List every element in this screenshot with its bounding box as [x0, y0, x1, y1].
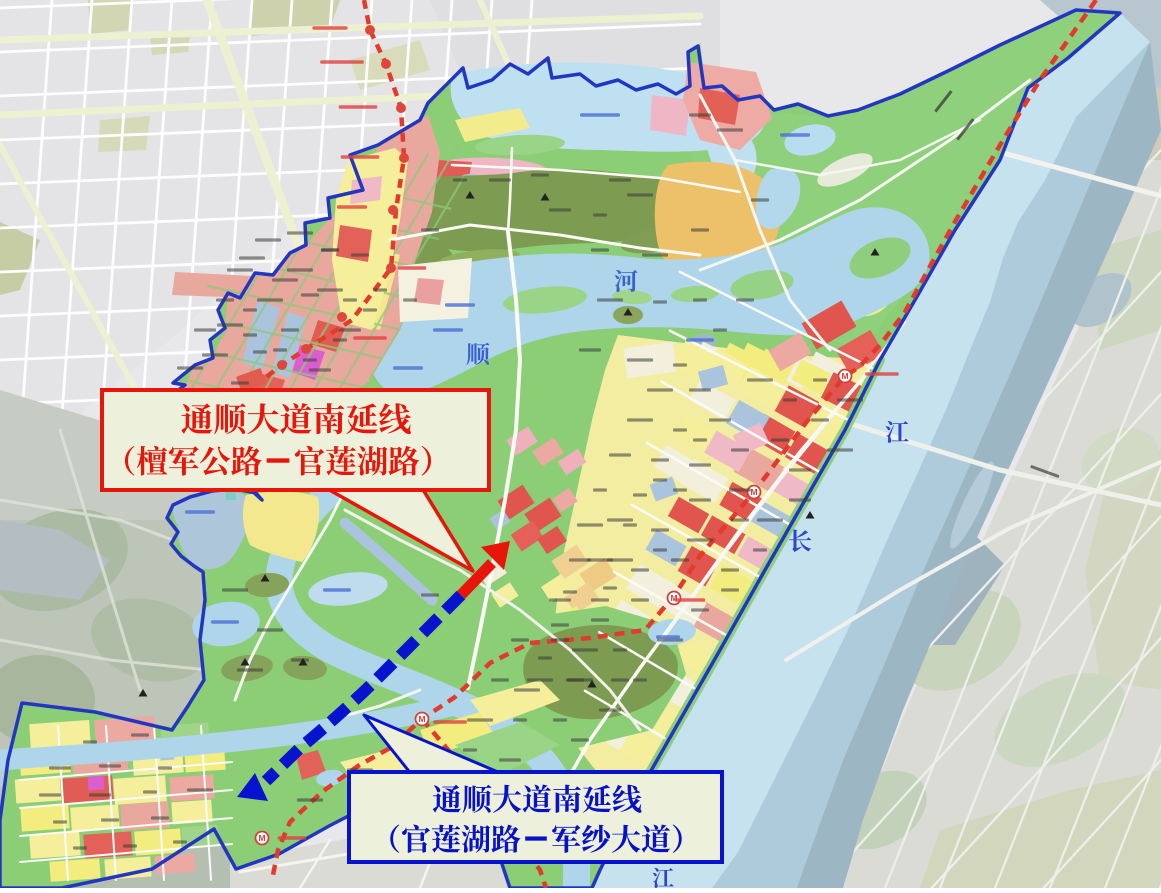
svg-text:M: M: [841, 371, 848, 381]
svg-text:M: M: [750, 487, 757, 497]
svg-text:M: M: [418, 714, 425, 724]
svg-text:M: M: [258, 833, 265, 843]
